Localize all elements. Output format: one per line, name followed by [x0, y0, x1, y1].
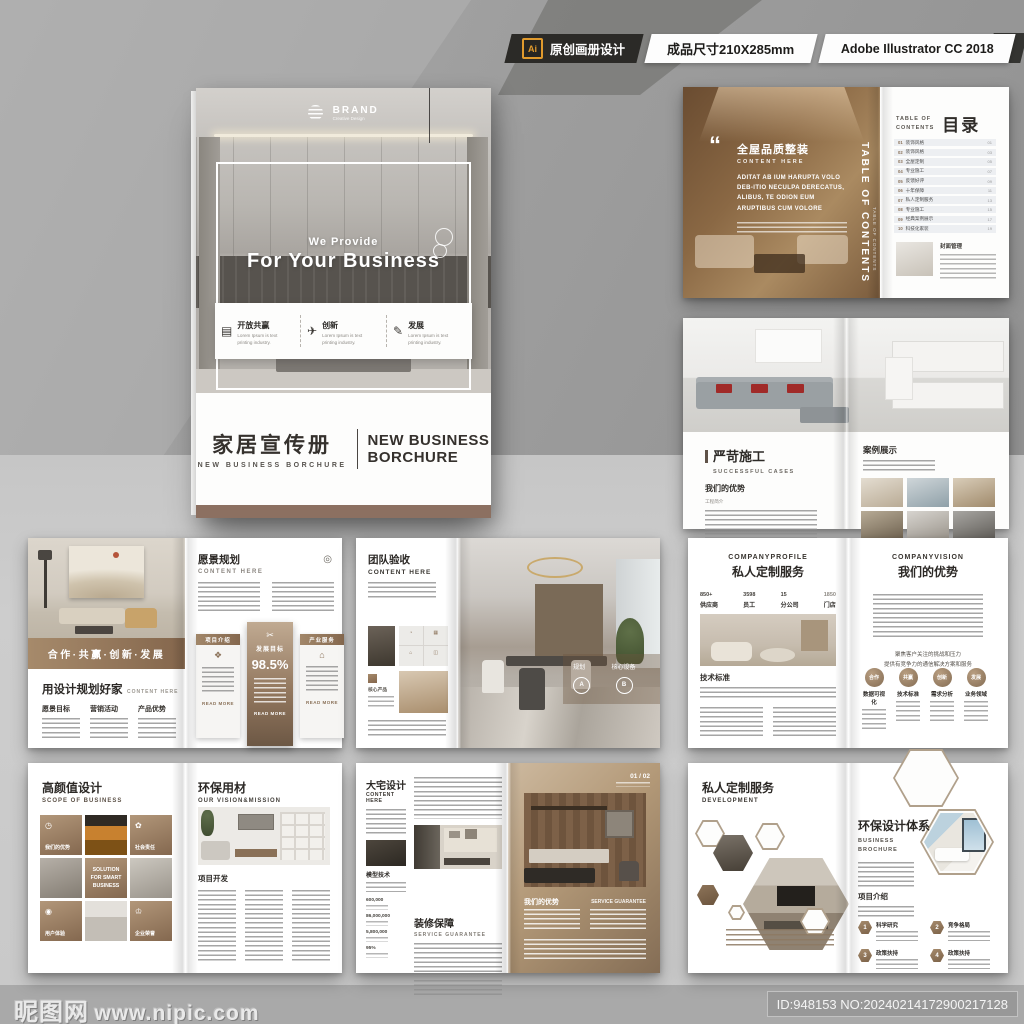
design-grid: ◷我们的优势 ✿社会责任 SOLUTION FOR SMART BUSINESS… — [40, 815, 172, 941]
stat-value: 1850 — [824, 592, 836, 598]
project-card[interactable]: 项目介绍 ❖ READ MORE — [196, 634, 240, 738]
placeholder-lines — [862, 709, 886, 731]
floor-lamp-shade — [38, 550, 52, 560]
stat-caption-lines — [366, 937, 388, 942]
dining-room-photo: 规划 A 核心设备 B — [458, 538, 660, 748]
sofa — [711, 642, 752, 661]
eco-system-title: 环保设计体系 — [858, 817, 930, 834]
dark-coffee-table — [75, 626, 113, 634]
placeholder-lines — [948, 959, 990, 969]
placeholder-lines — [198, 890, 236, 962]
quote-icon: “ — [709, 139, 721, 153]
guarantee-subtitle: SERVICE GUARANTEE — [414, 932, 502, 938]
case-thumbnail-grid — [861, 478, 995, 540]
armchair — [619, 861, 639, 882]
hex-outline — [755, 823, 785, 850]
bedroom-photo — [399, 671, 448, 713]
feature-title: 开放共赢 — [237, 321, 269, 330]
toc-footer-title: 封面管理 — [940, 242, 996, 250]
toc-item[interactable]: 09经典案例展示17 — [894, 216, 996, 223]
stat-value: 850+ — [700, 592, 718, 598]
origin-design-badge: Ai 原创画册设计 — [504, 34, 643, 63]
red-cushion — [787, 384, 803, 393]
case-thumbnail[interactable] — [861, 478, 903, 507]
wall-art — [755, 329, 822, 363]
brand-globe-icon — [308, 105, 323, 120]
placeholder-lines — [366, 882, 406, 892]
placeholder-lines — [245, 890, 283, 962]
headline-big: For Your Business — [196, 250, 491, 273]
eco-sub1: BUSINESS — [858, 837, 930, 846]
model-photo — [366, 840, 406, 866]
placeholder-lines — [948, 931, 990, 941]
sofa — [59, 608, 125, 624]
eco-title: 环保用材 — [198, 779, 281, 796]
cover-bedroom-photo: BRAND Creative Design We Provide For You… — [196, 88, 491, 393]
placeholder-lines — [272, 582, 334, 612]
white-chair — [482, 660, 504, 694]
art-piece — [465, 829, 477, 839]
grid-icon: ◔ — [399, 626, 424, 646]
stat-label: 员工 — [743, 600, 755, 609]
page-caption-lines — [616, 782, 650, 787]
toc-item[interactable]: 03全屋定制05 — [894, 158, 996, 165]
stat-value: 95% — [366, 946, 406, 951]
study-room-photo — [198, 807, 330, 865]
note-line-1: 聚焦客户关注的挑战和压力 — [858, 650, 998, 658]
ring-chandelier — [527, 557, 583, 578]
placeholder-lines — [773, 707, 836, 737]
eco-sub2: BROCHURE — [858, 846, 930, 855]
toc-item[interactable]: 02装饰风格03 — [894, 149, 996, 156]
headline-small: We Provide — [196, 236, 491, 248]
wood-wall-photo — [524, 793, 646, 887]
origin-design-label: 原创画册设计 — [550, 39, 625, 58]
wardrobe-photo — [368, 626, 395, 666]
cover-title-cn: 家居宣传册 — [198, 429, 347, 459]
badge-b[interactable]: B — [616, 677, 633, 694]
circle-label: 需求分析 — [930, 690, 954, 698]
size-badge: 成品尺寸210X285mm — [644, 34, 817, 63]
grid-icon: ◫ — [424, 646, 449, 666]
team-title: 团队验收 — [368, 552, 436, 567]
goal-value: 98.5% — [247, 657, 293, 672]
diamond-icon: ❖ — [196, 650, 240, 661]
advantage-label: 我们的优势 — [524, 897, 559, 907]
cases-spread: 严苛施工 SUCCESSFUL CASES 我们的优势 工程简介 案例展示 — [683, 318, 1009, 529]
placeholder-lines — [414, 943, 502, 995]
feature-desc: Lorem Ipsum is text printing industry. — [408, 333, 452, 347]
poster-canvas: Ai 原创画册设计 成品尺寸210X285mm Adobe Illustrato… — [0, 0, 1024, 1024]
feature-desc: Lorem Ipsum is text printing industry. — [322, 333, 366, 347]
case-thumbnail[interactable] — [907, 478, 949, 507]
rattan-chair — [125, 608, 156, 628]
vision-right-subtitle: CONTENT HERE — [198, 569, 263, 575]
feature-title: 发展 — [408, 321, 424, 330]
placeholder-lines — [590, 909, 646, 931]
toc-item[interactable]: 05反馈好评09 — [894, 177, 996, 184]
num-badge-1: 1 — [858, 921, 872, 934]
round-table — [760, 648, 795, 662]
toc-vertical-label: TABLE OF CONTENTS — [859, 142, 870, 283]
core-product-chip — [368, 674, 377, 683]
stat-label: 供应商 — [700, 600, 718, 609]
toc-eyebrow-1: TABLE OF — [896, 115, 934, 123]
livingroom-photo-cell — [130, 858, 172, 898]
circle-label: 技术标准 — [896, 690, 920, 698]
industry-card[interactable]: 产业服务 ⌂ READ MORE — [300, 634, 344, 738]
placeholder-lines — [254, 678, 286, 704]
design-title: 高颜值设计 — [42, 779, 122, 796]
sideboard — [529, 849, 610, 862]
coop-circle: 合作 — [865, 668, 884, 687]
cases-sub2: 我们的优势 — [705, 483, 817, 494]
mansion-subtitle: CONTENT HERE — [366, 792, 406, 804]
case-thumbnail[interactable] — [953, 478, 995, 507]
stat-label: 分公司 — [781, 600, 799, 609]
stat-caption-lines — [366, 905, 388, 910]
cases-title: 严苛施工 — [713, 449, 765, 464]
shelf-unit — [885, 357, 913, 400]
cases-text-area: 严苛施工 SUCCESSFUL CASES 我们的优势 工程简介 案例展示 — [683, 432, 1009, 529]
plant — [201, 810, 214, 836]
toc-photo-page: “ 全屋品质整装 CONTENT HERE ADITAT AB IUM HARU… — [683, 87, 880, 298]
num-badge-3: 3 — [858, 949, 872, 962]
cover-title-en2: BORCHURE — [368, 449, 490, 466]
team-subtitle: CONTENT HERE — [368, 569, 436, 576]
cover-headline: We Provide For Your Business — [196, 236, 491, 273]
placeholder-lines — [700, 687, 836, 701]
round-art — [605, 810, 633, 838]
mansion-title: 大宅设计 — [366, 777, 406, 792]
floor-lamp-pole — [44, 556, 47, 608]
stat-value: 3598 — [743, 592, 755, 598]
placeholder-lines — [198, 582, 260, 612]
toc-left-body: ADITAT AB IUM HARUPTA VOLO DEB-ITIO NECU… — [737, 173, 853, 214]
col-label: 产品优势 — [138, 704, 176, 714]
scissors-icon: ✂ — [247, 630, 293, 641]
wardrobe-photo-cell — [40, 858, 82, 898]
vision-title: 我们的优势 — [858, 563, 998, 580]
brand-name: BRAND — [333, 105, 379, 116]
core-equipment-label: 核心设备 — [612, 662, 636, 671]
brand-logo: BRAND Creative Design — [196, 104, 491, 122]
contact-ring-icon: ◎ — [323, 554, 332, 565]
design-spread: 高颜值设计 SCOPE OF BUSINESS ◷我们的优势 ✿社会责任 SOL… — [28, 763, 342, 973]
vision-columns: 愿景目标 营销活动 产品优势 — [42, 704, 176, 738]
placeholder-lines — [138, 718, 176, 738]
software-badge: Adobe Illustrator CC 2018 — [818, 34, 1015, 63]
hex-brown-solid — [697, 885, 719, 905]
placeholder-lines — [90, 718, 128, 738]
circle-label: 业务领域 — [964, 690, 988, 698]
sofa — [201, 841, 230, 861]
vision-left-title: 用设计规划好家 — [42, 684, 123, 696]
service-guarantee-label: SERVICE GUARANTEE — [591, 899, 646, 905]
item-label: 政策扶持 — [876, 949, 918, 957]
mansion-spread: 大宅设计 CONTENT HERE 模型技术 600,000 86,000,00… — [356, 763, 660, 973]
responsibility-cell[interactable]: ✿社会责任 — [130, 815, 172, 855]
placeholder-lines — [863, 460, 935, 474]
placeholder-lines — [896, 701, 920, 723]
vision-intro-lines — [198, 582, 334, 612]
title-divider — [357, 429, 358, 469]
red-cushion — [716, 384, 732, 393]
image-id-box: ID:948153 NO:20240214172900217128 — [767, 991, 1018, 1017]
placeholder-lines — [858, 906, 914, 920]
placeholder-lines — [940, 254, 996, 280]
project-intro-label: 项目介绍 — [858, 891, 914, 902]
toc-item[interactable]: 10科技化家装19 — [894, 225, 996, 232]
crown-icon: ♔ — [135, 907, 142, 916]
toc-item[interactable]: 07私人定制服务13 — [894, 196, 996, 203]
cases-small: 工程简介 — [705, 499, 817, 505]
chinese-livingroom-photo — [28, 538, 185, 638]
brown-photo-page: 01 / 02 我们的优势 SERVICE GUARANTEE — [508, 763, 660, 973]
placeholder-lines — [368, 696, 394, 708]
placeholder-lines — [368, 720, 446, 738]
cover-brown-strip — [196, 505, 491, 518]
cover-title-cn-sub: NEW BUSINESS BORCHURE — [198, 462, 347, 469]
wall-shelf — [531, 806, 607, 810]
custom-spread: 私人定制服务 DEVELOPMENT 环保设计体系 BUSINESS BROCH… — [688, 763, 1008, 973]
feature-innovation: ✈ 创新 Lorem Ipsum is text printing indust… — [300, 315, 386, 347]
cases-subtitle: SUCCESSFUL CASES — [713, 469, 817, 475]
col-label: 愿景目标 — [42, 704, 80, 714]
coffee-table — [754, 254, 805, 273]
watermark: 昵图网 www.nipic.com — [14, 992, 260, 1024]
read-more[interactable]: READ MORE — [247, 711, 293, 716]
note-line-2: 提供有竞争力的通信解决方案和服务 — [858, 660, 998, 668]
placeholder-lines — [524, 909, 580, 931]
development-circle: 发展 — [967, 668, 986, 687]
placeholder-lines — [42, 718, 80, 738]
software-label: Adobe Illustrator CC 2018 — [841, 42, 994, 56]
bench — [524, 868, 595, 883]
mountain-shape — [69, 569, 144, 598]
profile-photo — [700, 614, 836, 666]
cove-light — [214, 134, 474, 137]
brochure-cover: BRAND Creative Design We Provide For You… — [196, 88, 491, 518]
profile-spread: COMPANYPROFILE 私人定制服务 850+供应商 3598员工 15分… — [688, 538, 1008, 748]
placeholder-lines — [524, 939, 646, 961]
watermark-url: www.nipic.com — [94, 1002, 259, 1024]
feature-desc: Lorem Ipsum is text printing industry. — [237, 333, 281, 347]
plan-label: 规划 — [573, 662, 585, 671]
tv-screen — [777, 886, 815, 906]
honor-cell[interactable]: ♔企业荣誉 — [130, 901, 172, 941]
placeholder-lines — [930, 701, 954, 723]
tech-standard-label: 技术标准 — [700, 672, 836, 683]
brown-placeholder-lines — [726, 929, 834, 949]
grid-icon: ⌂ — [399, 646, 424, 666]
flower-icon: ✿ — [135, 821, 142, 830]
living-room-photo — [683, 318, 1009, 432]
advantage-circles: 合作 数据可视化 共赢 技术标准 创新 需求分析 发展 业务领域 — [862, 668, 988, 731]
placeholder-lines — [306, 666, 338, 692]
circle-label: 数据可视化 — [862, 690, 886, 706]
placeholder-lines — [202, 667, 234, 693]
long-table — [444, 858, 490, 865]
toc-left-title: 全屋品质整装 — [737, 141, 853, 157]
custom-subtitle: DEVELOPMENT — [702, 798, 774, 804]
toc-vertical-sublabel: TABLE OF CONTENTS — [872, 207, 877, 271]
adobe-illustrator-icon: Ai — [522, 38, 543, 59]
ottoman — [800, 407, 849, 423]
stat-value: 86,000,000 — [366, 914, 406, 919]
project-dev-label: 项目开发 — [198, 873, 330, 884]
advantage-cell[interactable]: ◷我们的优势 — [40, 815, 82, 855]
toc-list-page: TABLE OF CONTENTS 目录 01装饰风格01 02装饰风格03 0… — [880, 87, 1009, 298]
desk — [235, 849, 277, 857]
cover-title-en1: NEW BUSINESS — [368, 432, 490, 449]
clock-icon: ◷ — [45, 821, 52, 830]
feature-title: 创新 — [322, 321, 338, 330]
mansion-stats: 600,000 86,000,000 5,800,000 95% — [366, 898, 406, 958]
read-more[interactable]: READ MORE — [196, 701, 240, 706]
page-number: 01 / 02 — [616, 773, 650, 780]
vision-spread: 合作·共赢·创新·发展 用设计规划好家 CONTENT HERE 愿景目标 营销… — [28, 538, 342, 748]
placeholder-lines — [858, 862, 914, 888]
toc-item[interactable]: 08专业施工15 — [894, 206, 996, 213]
stat-value: 5,800,000 — [366, 930, 406, 935]
paper-plane-icon: ✈ — [307, 324, 317, 338]
cover-feature-strip: ▤ 开放共赢 Lorem Ipsum is text printing indu… — [215, 303, 472, 359]
toc-eyebrow-2: CONTENTS — [896, 124, 934, 132]
toc-left-subtitle: CONTENT HERE — [737, 159, 853, 165]
size-label: 成品尺寸210X285mm — [667, 39, 794, 58]
toc-title: 目录 — [942, 111, 980, 136]
profile-stats: 850+供应商 3598员工 15分公司 1850门店 — [700, 592, 836, 609]
spread-fold — [172, 763, 198, 973]
toc-item[interactable]: 06十年保障11 — [894, 187, 996, 194]
solution-cell[interactable]: SOLUTION FOR SMART BUSINESS — [85, 858, 127, 898]
item-label: 竞争格局 — [948, 921, 990, 929]
placeholder-lines — [368, 582, 436, 600]
showcase-title: 案例展示 — [863, 444, 935, 456]
guarantee-title: 装修保障 — [414, 915, 502, 930]
experience-cell[interactable]: ◉用户体验 — [40, 901, 82, 941]
case-thumbnail[interactable] — [907, 511, 949, 540]
read-more[interactable]: READ MORE — [300, 700, 344, 705]
placeholder-lines — [705, 510, 817, 538]
custom-title: 私人定制服务 — [702, 779, 774, 796]
core-product-label: 核心产品 — [368, 686, 395, 693]
grid-icon: ▦ — [424, 626, 449, 646]
layers-icon: ▤ — [221, 324, 232, 338]
team-spread: 团队验收 CONTENT HERE ◔ ▦ ⌂ ◫ 核心产品 — [356, 538, 660, 748]
goal-card[interactable]: ✂ 发展目标 98.5% READ MORE — [247, 622, 293, 746]
vision-right-title: 愿景规划 — [198, 552, 263, 567]
case-thumbnail[interactable] — [861, 511, 903, 540]
profile-title: 私人定制服务 — [698, 563, 838, 580]
num-badge-2: 2 — [930, 921, 944, 934]
toc-spread: “ 全屋品质整装 CONTENT HERE ADITAT AB IUM HARU… — [683, 87, 1009, 298]
stat-value: 15 — [781, 592, 799, 598]
placeholder-lines — [876, 959, 918, 969]
cover-title-block: 家居宣传册 NEW BUSINESS BORCHURE NEW BUSINESS… — [196, 393, 491, 505]
art-piece — [449, 831, 460, 838]
house-icon: ⌂ — [300, 650, 344, 660]
dark-shelf — [414, 825, 440, 869]
stat-caption-lines — [366, 953, 388, 958]
placeholder-lines — [964, 701, 988, 723]
placeholder-lines — [292, 890, 330, 962]
sofa — [695, 235, 754, 269]
image-id-text: ID:948153 NO:20240214172900217128 — [777, 997, 1008, 1012]
goal-label: 发展目标 — [247, 644, 293, 653]
design-subtitle: SCOPE OF BUSINESS — [42, 798, 122, 804]
ceiling-glow — [699, 87, 864, 142]
badge-a[interactable]: A — [573, 677, 590, 694]
cabinet — [801, 620, 828, 651]
kitchen-photo-cell — [85, 815, 127, 855]
numbered-items: 1 科学研究 2 竞争格局 3 政策扶持 4 政策扶持 — [858, 921, 994, 969]
red-sun — [113, 552, 119, 558]
toc-list: 01装饰风格01 02装饰风格03 03全屋定制05 04专业施工07 05反馈… — [894, 139, 996, 235]
placeholder-lines — [700, 707, 763, 737]
stat-caption-lines — [366, 921, 388, 926]
num-badge-4: 4 — [930, 949, 944, 962]
eco-subtitle: OUR VISION&MISSION — [198, 798, 281, 804]
feature-open-winwin: ▤ 开放共赢 Lorem Ipsum is text printing indu… — [215, 315, 300, 347]
bookshelf — [280, 812, 325, 861]
model-tech-label: 模型技术 — [366, 870, 406, 879]
pencil-icon: ✎ — [393, 324, 403, 338]
placeholder-lines — [873, 594, 983, 640]
stat-value: 600,000 — [366, 898, 406, 903]
hex-outline-small — [728, 905, 745, 920]
col-label: 营销活动 — [90, 704, 128, 714]
toc-item[interactable]: 04专业施工07 — [894, 168, 996, 175]
stat-label: 门店 — [824, 600, 836, 609]
brand-tagline: Creative Design — [333, 116, 379, 121]
vision-eyebrow: COMPANYVISION — [858, 554, 998, 561]
placeholder-lines — [876, 931, 918, 941]
winwin-circle: 共赢 — [899, 668, 918, 687]
watermark-site: 昵图网 — [14, 999, 89, 1024]
red-cushion — [751, 384, 767, 393]
target-icon: ◉ — [45, 907, 52, 916]
slogan-text: 合作·共赢·创新·发展 — [48, 646, 166, 661]
mountain-artwork — [69, 546, 144, 598]
artwall-dining-photo — [414, 825, 502, 869]
icon-grid-card: ◔ ▦ ⌂ ◫ — [399, 626, 448, 666]
title-accent-bar — [705, 450, 708, 463]
toc-item[interactable]: 01装饰风格01 — [894, 139, 996, 146]
toc-footer-photo — [896, 242, 933, 276]
item-label: 科学研究 — [876, 921, 918, 929]
wood-wall-panel — [535, 584, 604, 655]
item-label: 政策扶持 — [948, 949, 990, 957]
dark-chair — [519, 668, 545, 710]
slogan-banner: 合作·共赢·创新·发展 — [28, 638, 185, 669]
wall-frames — [238, 814, 274, 830]
vision-left-subtitle: CONTENT HERE — [127, 689, 178, 695]
innovation-circle: 创新 — [933, 668, 952, 687]
profile-eyebrow: COMPANYPROFILE — [698, 554, 838, 561]
case-thumbnail[interactable] — [953, 511, 995, 540]
office-photo-cell — [85, 901, 127, 941]
placeholder-lines — [414, 777, 502, 819]
placeholder-lines — [366, 809, 406, 835]
feature-development: ✎ 发展 Lorem Ipsum is text printing indust… — [386, 315, 472, 347]
placeholder-lines — [737, 222, 847, 236]
